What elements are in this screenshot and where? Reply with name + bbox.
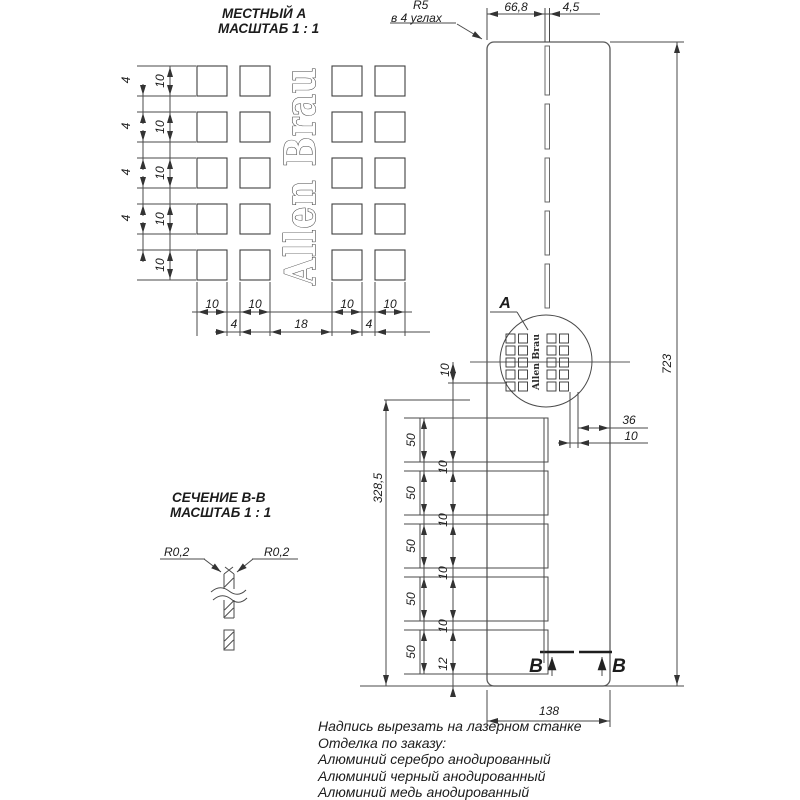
break-wave-2 — [213, 596, 247, 603]
dim-colgap-4-left: 4 — [231, 317, 238, 331]
dim-row-10-4: 10 — [153, 212, 167, 226]
dim-slot-50-2: 50 — [404, 486, 418, 500]
dim-slotgap-10-3: 10 — [436, 566, 450, 580]
section-view-title: СЕЧЕНИЕ В-В — [172, 490, 266, 505]
dim-col-10-3: 10 — [340, 297, 354, 311]
dim-gap-4-2: 4 — [119, 122, 133, 129]
section-view-scale: МАСШТАБ 1 : 1 — [170, 505, 271, 520]
dim-row-10-3: 10 — [153, 166, 167, 180]
dim-slot-50-4: 50 — [404, 592, 418, 606]
dim-col-10-1: 10 — [205, 297, 219, 311]
note-line-5: Алюминий медь анодированный — [317, 784, 529, 800]
dim-top-width: 66,8 — [504, 0, 528, 14]
dim-slots-span: 328,5 — [371, 473, 385, 503]
local-view-title: МЕСТНЫЙ А — [222, 5, 306, 21]
dim-col-10-2: 10 — [248, 297, 262, 311]
dim-slotgap-10-4: 10 — [436, 619, 450, 633]
notes: Надпись вырезать на лазерном станке Отде… — [317, 718, 582, 800]
dim-bottom-gap-12: 12 — [436, 657, 450, 671]
dim-slot-50-3: 50 — [404, 539, 418, 553]
radius-label-left: R0,2 — [164, 545, 190, 559]
dim-colgap-18: 18 — [294, 317, 308, 331]
brand-logo-large: Allen Brau — [276, 67, 325, 286]
dim-row-10-1: 10 — [153, 74, 167, 88]
dim-colgap-4-right: 4 — [366, 317, 373, 331]
section-mark-b-right: В — [612, 656, 626, 677]
dim-slotgap-10-1: 10 — [436, 460, 450, 474]
break-wave-1 — [211, 588, 246, 595]
dim-gap-4-3: 4 — [119, 168, 133, 175]
dim-col-10-4: 10 — [383, 297, 397, 311]
dim-slot-width: 4,5 — [563, 0, 580, 14]
dim-gap-4-4: 4 — [119, 214, 133, 221]
section-view-bb: СЕЧЕНИЕ В-В МАСШТАБ 1 : 1 R0,2 R0,2 — [164, 490, 290, 650]
dim-row-10-2: 10 — [153, 120, 167, 134]
dim-row-10-5: 10 — [153, 258, 167, 272]
technical-drawing: МЕСТНЫЙ А МАСШТАБ 1 : 1 Allen Brau 10 10… — [0, 0, 800, 800]
brand-logo-small: Allen Brau — [532, 334, 542, 392]
center-slot-dashes — [545, 46, 550, 308]
dim-slot-50-5: 50 — [404, 645, 418, 659]
dim-logo-row-10: 10 — [438, 363, 452, 377]
note-line-3: Алюминий серебро анодированный — [317, 751, 551, 767]
dim-width-138: 138 — [539, 704, 559, 718]
note-line-2: Отделка по заказу: — [318, 735, 446, 751]
dim-slotgap-10-2: 10 — [436, 513, 450, 527]
dim-logo-offset-36: 36 — [622, 413, 636, 427]
dim-logo-inset-10: 10 — [624, 429, 638, 443]
main-panel-view: Allen Brau R5 в 4 углах 66,8 4,5 A 723 3… — [371, 0, 674, 718]
dim-height-723: 723 — [660, 354, 674, 374]
dim-slot-50-1: 50 — [404, 433, 418, 447]
dimension-lines — [137, 8, 684, 727]
radius-label-right: R0,2 — [264, 545, 290, 559]
dimension-arrows — [143, 14, 677, 721]
lower-slots — [420, 418, 548, 674]
note-line-4: Алюминий черный анодированный — [317, 768, 546, 784]
section-mark-b-left: В — [529, 656, 543, 677]
dim-gap-4-1: 4 — [119, 76, 133, 83]
detail-label-a: A — [498, 295, 511, 312]
note-line-1: Надпись вырезать на лазерном станке — [318, 718, 582, 734]
local-view-scale: МАСШТАБ 1 : 1 — [218, 21, 319, 36]
